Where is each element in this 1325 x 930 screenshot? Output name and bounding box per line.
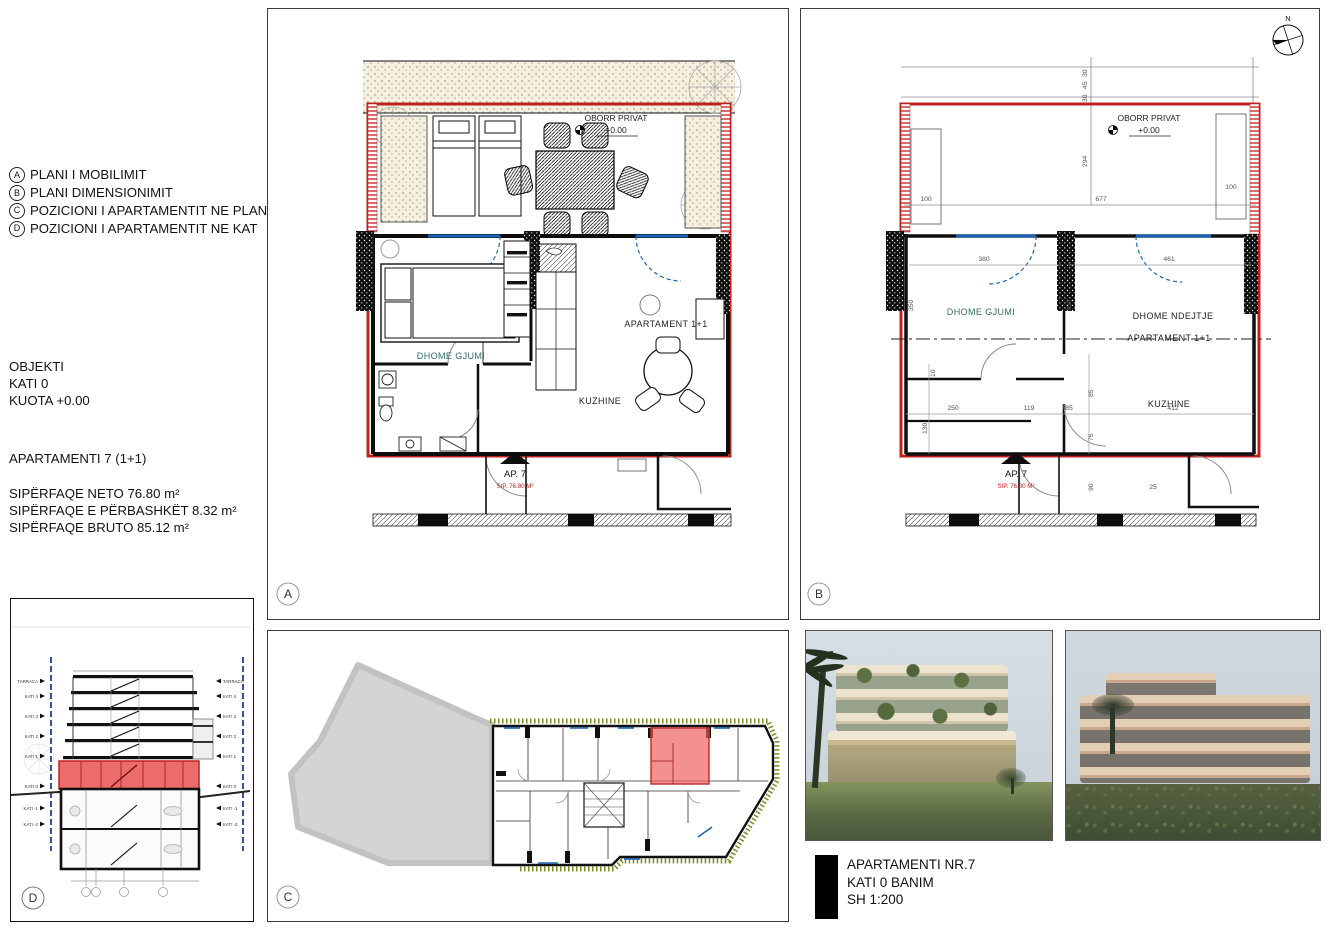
- label-kitchen: KUZHINE: [1148, 399, 1190, 409]
- plan-b-drawing: 30 45 30 294 100 677 100 OBORR PRIVAT +0…: [801, 9, 1319, 619]
- render1-grass: [806, 782, 1052, 840]
- title-line-3: SH 1:200: [847, 891, 975, 909]
- bedroom-furniture: [381, 240, 519, 342]
- label-bedroom: DHOME GJUMI: [947, 307, 1015, 317]
- plan-a-drawing: OBORR PRIVAT +0.00: [268, 9, 788, 619]
- svg-text:KATI -2: KATI -2: [223, 822, 238, 827]
- exterior-render-1: [805, 630, 1053, 841]
- building-outline: [493, 726, 773, 865]
- render2-palm-crown: [1092, 694, 1134, 716]
- courtyard: OBORR PRIVAT +0.00: [381, 113, 721, 237]
- courtyard-label: OBORR PRIVAT: [585, 113, 648, 123]
- dim-bedroom-height: 350: [908, 299, 915, 311]
- svg-text:KATI 3: KATI 3: [223, 714, 237, 719]
- interior-dim-lines: [906, 265, 1254, 454]
- dim-room-height: 360: [1066, 299, 1073, 311]
- red-wall-right: [1250, 104, 1259, 234]
- legend-item-a: A PLANI I MOBILIMIT: [9, 167, 267, 184]
- corridor-band: [906, 456, 1259, 526]
- apartment-tag: AP. 7 SIP. 76.80 M²: [496, 452, 533, 490]
- planter-right: [685, 116, 721, 228]
- svg-text:KATI 2: KATI 2: [223, 734, 237, 739]
- area-summary: SIPËRFAQE NETO 76.80 m² SIPËRFAQE E PËRB…: [9, 486, 237, 537]
- dim-shaft-b: 75: [1088, 433, 1095, 441]
- panel-d-section: TARRACA KATI 4 KATI 3 KATI 2 KATI 1 KATI…: [10, 598, 254, 922]
- svg-text:KATI -1: KATI -1: [223, 806, 238, 811]
- dim-planter-right: 100: [1225, 184, 1237, 191]
- red-wall-left: [901, 104, 910, 232]
- dim-courtyard-depth: 294: [1082, 155, 1089, 167]
- area-bruto: SIPËRFAQE BRUTO 85.12 m²: [9, 520, 237, 537]
- dim-top-a: 30: [1082, 69, 1089, 77]
- title-block: APARTAMENTI NR.7 KATI 0 BANIM SH 1:200: [815, 855, 975, 919]
- label-apartment: APARTAMENT 1+1: [624, 319, 707, 329]
- object-info: OBJEKTI KATI 0 KUOTA +0.00: [9, 359, 90, 410]
- dim-courtyard-width: 677: [1095, 196, 1107, 203]
- bathroom-fixtures: [379, 371, 466, 451]
- svg-text:KATI -2: KATI -2: [23, 822, 38, 827]
- object-line-2: KATI 0: [9, 376, 90, 393]
- area-neto: SIPËRFAQE NETO 76.80 m²: [9, 486, 237, 503]
- planter-left: [911, 129, 941, 224]
- svg-text:KATI 4: KATI 4: [25, 694, 39, 699]
- courtyard-level: +0.00: [1138, 125, 1160, 135]
- legend-label-a: PLANI I MOBILIMIT: [30, 167, 147, 184]
- label-kitchen: KUZHINE: [579, 396, 621, 406]
- north-label: N: [1285, 14, 1290, 23]
- courtyard-label: OBORR PRIVAT: [1118, 113, 1181, 123]
- dim-corridor: 90: [1088, 483, 1095, 491]
- sun-loungers: [433, 116, 521, 216]
- level-marker: [576, 126, 585, 135]
- svg-text:KATI 1: KATI 1: [25, 754, 39, 759]
- dim-niche: 85: [1065, 405, 1073, 412]
- basement: [61, 789, 199, 869]
- dim-jamb: 10: [930, 369, 937, 377]
- apartment-tag: AP. 7 SIP. 76.80 M²: [997, 452, 1034, 490]
- top-dimension-lines: [901, 57, 1259, 205]
- north-compass-icon: N: [1269, 14, 1307, 59]
- svg-text:KATI 2: KATI 2: [25, 734, 39, 739]
- dim-shaft-a: 85: [1088, 389, 1095, 397]
- kitchen-counters: [536, 244, 576, 390]
- panel-c-label: C: [277, 886, 299, 908]
- title-line-1: APARTAMENTI NR.7: [847, 856, 975, 874]
- panel-a-furnished-plan: OBORR PRIVAT +0.00: [267, 8, 789, 620]
- highlighted-apartment: [651, 728, 709, 784]
- level-markers-right: TARRACA KATI 4 KATI 3 KATI 2 KATI 1 KATI…: [216, 679, 244, 827]
- svg-text:D: D: [29, 891, 38, 905]
- svg-text:KATI 0: KATI 0: [25, 784, 39, 789]
- key-plan-drawing: C: [268, 631, 788, 921]
- legend-label-d: POZICIONI I APARTAMENTIT NE KAT: [30, 221, 257, 238]
- svg-text:KATI 0: KATI 0: [223, 784, 237, 789]
- red-wall-left: [368, 104, 377, 232]
- panel-a-label: A: [277, 583, 299, 605]
- render1-terrace-plants: [832, 661, 1012, 781]
- dim-step: 25: [1149, 484, 1157, 491]
- tag-area: SIP. 76.80 M²: [496, 483, 533, 490]
- stair-core: [584, 783, 624, 827]
- dining-set: [504, 123, 651, 237]
- title-block-text: APARTAMENTI NR.7 KATI 0 BANIM SH 1:200: [847, 855, 975, 919]
- panel-b-label: B: [808, 583, 830, 605]
- svg-text:KATI 3: KATI 3: [25, 714, 39, 719]
- legend: A PLANI I MOBILIMIT B PLANI DIMENSIONIMI…: [9, 167, 267, 239]
- tag-area: SIP. 76.80 M²: [997, 483, 1034, 490]
- dim-hall: 250: [947, 405, 959, 412]
- section-drawing: TARRACA KATI 4 KATI 3 KATI 2 KATI 1 KATI…: [11, 599, 250, 918]
- exterior-render-2: [1065, 630, 1321, 841]
- dim-living-width: 461: [1163, 256, 1175, 263]
- living-furniture: [634, 295, 724, 414]
- legend-key-d: D: [9, 221, 25, 237]
- dim-planter-left: 100: [920, 196, 932, 203]
- legend-item-c: C POZICIONI I APARTAMENTIT NE PLAN: [9, 203, 267, 220]
- panel-c-key-plan: C: [267, 630, 789, 922]
- grid-bubbles: [71, 869, 199, 897]
- level-marker: [1109, 126, 1118, 135]
- panel-d-label: D: [22, 887, 44, 909]
- planter-left: [381, 116, 427, 222]
- level-markers-left: TARRACA KATI 4 KATI 3 KATI 2 KATI 1 KATI…: [17, 679, 45, 827]
- legend-item-d: D POZICIONI I APARTAMENTIT NE KAT: [9, 221, 267, 238]
- label-living: DHOME NDEJTJE: [1133, 311, 1214, 321]
- svg-text:B: B: [815, 587, 823, 601]
- wardrobe: [504, 241, 530, 337]
- dim-bedroom-width: 380: [978, 256, 990, 263]
- dim-entry: 119: [1024, 405, 1035, 412]
- legend-label-b: PLANI DIMENSIONIMIT: [30, 185, 173, 202]
- panel-b-dimension-plan: 30 45 30 294 100 677 100 OBORR PRIVAT +0…: [800, 8, 1320, 620]
- corridor-band: [373, 456, 731, 526]
- svg-text:A: A: [284, 587, 292, 601]
- svg-text:TARRACA: TARRACA: [17, 679, 38, 684]
- red-boundary: [901, 104, 1259, 456]
- red-wall-right: [721, 104, 730, 232]
- title-line-2: KATI 0 BANIM: [847, 874, 975, 892]
- svg-text:KATI 1: KATI 1: [223, 754, 237, 759]
- legend-key-a: A: [9, 167, 25, 183]
- site-parcel: [291, 665, 492, 863]
- legend-key-c: C: [9, 203, 25, 219]
- svg-text:KATI -1: KATI -1: [23, 806, 38, 811]
- render2-field-texture: [1066, 784, 1320, 840]
- planter-right: [1216, 114, 1246, 219]
- highlighted-floor-kati0: [59, 761, 199, 789]
- svg-text:C: C: [284, 890, 293, 904]
- title-block-bar: [815, 855, 838, 919]
- dim-wc: 130: [922, 422, 929, 434]
- courtyard-level: +0.00: [605, 125, 627, 135]
- background-palm: [24, 744, 54, 774]
- label-apartment: APARTAMENT 1+1: [1127, 333, 1210, 343]
- area-perbashket: SIPËRFAQE E PËRBASHKËT 8.32 m²: [9, 503, 237, 520]
- legend-key-b: B: [9, 185, 25, 201]
- tag-name: AP. 7: [504, 469, 526, 480]
- tag-name: AP. 7: [1005, 469, 1027, 480]
- legend-label-c: POZICIONI I APARTAMENTIT NE PLAN: [30, 203, 267, 220]
- svg-text:KATI 4: KATI 4: [223, 694, 237, 699]
- drawing-sheet: A PLANI I MOBILIMIT B PLANI DIMENSIONIMI…: [0, 0, 1325, 930]
- apartment-title: APARTAMENTI 7 (1+1): [9, 451, 146, 468]
- upper-floors: [63, 671, 213, 759]
- legend-item-b: B PLANI DIMENSIONIMIT: [9, 185, 267, 202]
- object-line-1: OBJEKTI: [9, 359, 90, 376]
- object-line-3: KUOTA +0.00: [9, 393, 90, 410]
- dim-top-c: 30: [1082, 94, 1089, 102]
- label-bedroom: DHOME GJUMI: [417, 351, 485, 361]
- svg-text:TARRACA: TARRACA: [223, 679, 244, 684]
- dim-top-b: 45: [1082, 81, 1089, 89]
- render1-small-palm-trunk: [1011, 778, 1014, 794]
